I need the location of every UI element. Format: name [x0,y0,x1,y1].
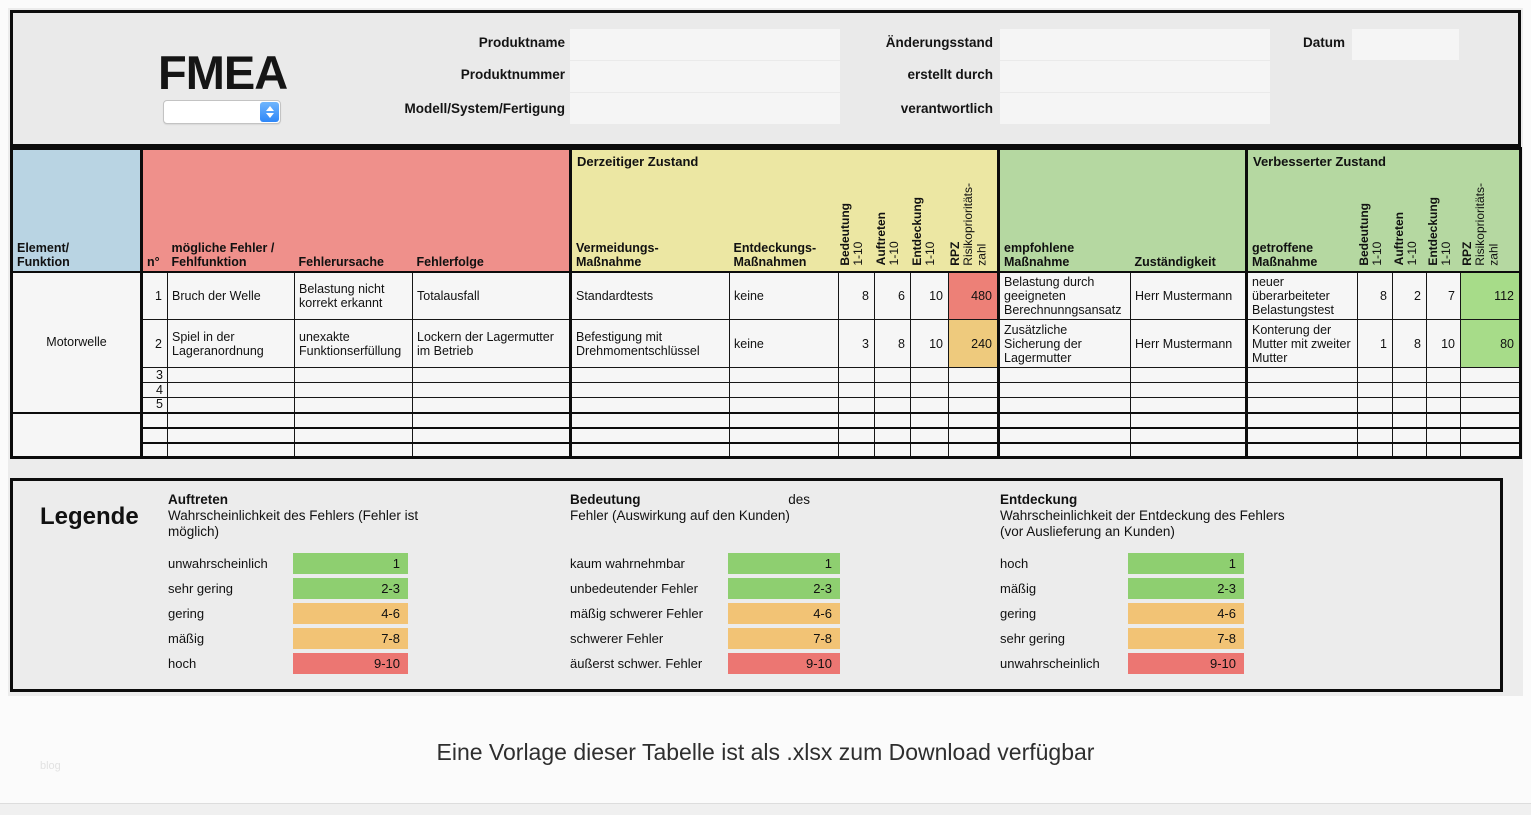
table-cell [1247,383,1358,398]
td-failure-cause: Belastung nicht korrekt erkannt [295,272,413,320]
produktnummer-label: Produktnummer [345,67,565,85]
table-cell [839,443,875,458]
download-caption: Eine Vorlage dieser Tabelle ist als .xls… [0,739,1531,766]
legend-scale-bar: 2-3 [293,578,408,599]
table-cell [999,383,1131,398]
table-cell [911,428,949,443]
legend-item: mäßig schwerer Fehler 4-6 [570,603,860,624]
td-detection-measure: keine [730,320,839,368]
table-cell [949,413,999,428]
table-cell [999,428,1131,443]
td-failure-cause: unexakte Funktionserfüllung [295,320,413,368]
table-cell [949,428,999,443]
table-cell [413,368,571,383]
table-cell [168,443,295,458]
td-no: 1 [142,272,168,320]
table-cell [1393,398,1427,413]
legend-heading: Bedeutung [570,492,641,507]
table-cell [168,413,295,428]
col-no: n° [142,149,168,272]
table-cell [1358,443,1393,458]
table-cell [911,368,949,383]
table-cell [1358,368,1393,383]
td-no [142,443,168,458]
table-cell [839,398,875,413]
col-vermeidungs-massnahme: Derzeitiger Zustand Vermeidungs- Maßnahm… [571,149,730,272]
legend-item: mäßig 2-3 [1000,578,1290,599]
td-detection-improved: 7 [1427,272,1461,320]
table-cell [911,383,949,398]
table-cell [1427,383,1461,398]
datum-input[interactable] [1352,29,1459,60]
table-cell [1247,443,1358,458]
td-severity-improved: 8 [1358,272,1393,320]
fmea-type-select[interactable] [163,100,281,124]
table-cell [875,368,911,383]
col-entdeckungs-massnahmen: Entdeckungs- Maßnahmen [730,149,839,272]
legend-box: Legende Auftreten Wahrscheinlichkeit des… [10,478,1503,692]
page-title: FMEA [158,45,287,100]
table-cell [875,413,911,428]
table-cell [730,383,839,398]
legend-scale-bar: 7-8 [293,628,408,649]
legend-column-bedeutung: Bedeutung des Fehler (Auswirkung auf den… [570,492,860,678]
legend-title: Legende [40,503,139,531]
legend-item: sehr gering 7-8 [1000,628,1290,649]
td-no: 3 [142,368,168,383]
col-empfohlene-massnahme: empfohlene Maßnahme [999,149,1131,272]
table-cell [295,443,413,458]
col-zustaendigkeit: Zuständigkeit [1131,149,1247,272]
table-cell [839,413,875,428]
table-cell [1247,398,1358,413]
table-cell [730,368,839,383]
legend-item: unbedeutender Fehler 2-3 [570,578,860,599]
table-cell [875,443,911,458]
td-rpz-improved: 112 [1461,272,1521,320]
legend-description: Wahrscheinlichkeit des Fehlers (Fehler i… [168,508,433,540]
table-cell [1427,428,1461,443]
td-no: 5 [142,398,168,413]
table-cell [1461,428,1521,443]
legend-scale-bar: 2-3 [728,578,840,599]
table-cell [875,428,911,443]
td-detection: 10 [911,320,949,368]
table-cell [1247,428,1358,443]
col-element-funktion: Element/ Funktion [12,149,142,272]
table-cell [949,398,999,413]
table-cell [730,443,839,458]
legend-item: gering 4-6 [168,603,458,624]
table-cell [949,368,999,383]
table-cell [999,368,1131,383]
legend-scale-bar: 9-10 [728,653,840,674]
table-cell [1393,383,1427,398]
col-getroffene-massnahme: Verbesserter Zustand getroffene Maßnahme [1247,149,1358,272]
legend-item: schwerer Fehler 7-8 [570,628,860,649]
td-occurrence: 8 [875,320,911,368]
verantwortlich-label: verantwortlich [773,101,993,119]
select-chevrons-icon [260,102,279,122]
erstellt-durch-input[interactable] [1000,61,1270,92]
td-responsibility: Herr Mustermann [1131,272,1247,320]
table-cell [1131,413,1247,428]
col-fehlerfolge: Fehlerfolge [413,149,571,272]
legend-scale-bar: 4-6 [728,603,840,624]
table-cell [295,368,413,383]
element-cell: Motorwelle [12,272,142,413]
legend-item: unwahrscheinlich 9-10 [1000,653,1290,674]
td-rpz: 480 [949,272,999,320]
legend-scale-bar: 7-8 [728,628,840,649]
table-cell [875,383,911,398]
table-cell [1461,368,1521,383]
table-cell [571,443,730,458]
legend-item: äußerst schwer. Fehler 9-10 [570,653,860,674]
table-cell [730,428,839,443]
table-cell [413,383,571,398]
table-cell [1461,383,1521,398]
table-cell [999,413,1131,428]
table-cell [571,413,730,428]
table-cell [413,413,571,428]
table-cell [413,443,571,458]
fmea-table: Element/ Funktion n° mögliche Fehler / F… [10,147,1522,459]
table-row: 4 [12,383,1521,398]
td-failure-mode: Spiel in der Lageranordnung [168,320,295,368]
td-severity: 3 [839,320,875,368]
table-cell [295,398,413,413]
table-cell [730,413,839,428]
legend-column-entdeckung: Entdeckung Wahrscheinlichkeit der Entdec… [1000,492,1290,678]
td-recommended-measure: Zusätzliche Sicherung der Lagermutter [999,320,1131,368]
fmea-header-box: FMEA Produktname Produktnummer Modell/Sy… [10,10,1521,147]
col-bedeutung: Bedeutung1-10 [839,149,875,272]
table-row: Motorwelle 1 Bruch der Welle Belastung n… [12,272,1521,320]
td-detection-improved: 10 [1427,320,1461,368]
footer-strip [0,803,1531,815]
legend-scale-bar: 1 [728,553,840,574]
table-cell [839,428,875,443]
table-cell [295,428,413,443]
table-cell [1247,368,1358,383]
table-cell [1131,443,1247,458]
table-row: 3 [12,368,1521,383]
table-cell [413,428,571,443]
section-title-derzeitiger-zustand: Derzeitiger Zustand [577,154,698,169]
table-cell [1131,398,1247,413]
table-row [12,428,1521,443]
table-cell [571,383,730,398]
legend-heading-suffix: des [788,492,810,507]
legend-column-auftreten: Auftreten Wahrscheinlichkeit des Fehlers… [168,492,458,678]
col-auftreten: Auftreten1-10 [875,149,911,272]
td-prevention-measure: Befestigung mit Drehmomentschlüssel [571,320,730,368]
td-prevention-measure: Standardtests [571,272,730,320]
td-severity-improved: 1 [1358,320,1393,368]
table-cell [1427,368,1461,383]
col-rpz: RPZRisikoprioritäts- zahl [949,149,999,272]
table-cell [839,383,875,398]
legend-scale-bar: 9-10 [1128,653,1244,674]
table-cell [168,398,295,413]
col-entdeckung-improved: Entdeckung1-10 [1427,149,1461,272]
legend-item: sehr gering 2-3 [168,578,458,599]
legend-heading: Auftreten [168,492,228,507]
table-cell [1393,443,1427,458]
table-cell [999,443,1131,458]
table-cell [1393,368,1427,383]
table-cell [295,383,413,398]
verantwortlich-input[interactable] [1000,93,1270,124]
table-cell [1358,428,1393,443]
legend-scale-bar: 4-6 [1128,603,1244,624]
td-responsibility: Herr Mustermann [1131,320,1247,368]
table-cell [839,368,875,383]
td-no: 2 [142,320,168,368]
table-cell [730,398,839,413]
td-no [142,413,168,428]
table-cell [168,383,295,398]
td-rpz-improved: 80 [1461,320,1521,368]
col-auftreten-improved: Auftreten1-10 [1393,149,1427,272]
table-row [12,443,1521,458]
table-cell [413,398,571,413]
datum-label: Datum [1225,35,1345,53]
legend-scale-bar: 7-8 [1128,628,1244,649]
td-occurrence-improved: 2 [1393,272,1427,320]
legend-item: mäßig 7-8 [168,628,458,649]
col-rpz-improved: RPZRisikoprioritäts- zahl [1461,149,1521,272]
table-cell [1358,383,1393,398]
table-cell [1393,413,1427,428]
table-cell [1358,398,1393,413]
td-failure-mode: Bruch der Welle [168,272,295,320]
table-cell [1393,428,1427,443]
table-cell [1461,443,1521,458]
table-cell [168,368,295,383]
table-cell [1461,398,1521,413]
td-taken-measure: neuer überarbeiteter Belastungstest [1247,272,1358,320]
table-cell [1131,368,1247,383]
table-cell [911,443,949,458]
table-cell [875,398,911,413]
col-moegliche-fehler: mögliche Fehler / Fehlfunktion [168,149,295,272]
table-cell [911,398,949,413]
table-cell [1427,398,1461,413]
legend-item: hoch 1 [1000,553,1290,574]
table-row [12,413,1521,428]
col-fehlerursache: Fehlerursache [295,149,413,272]
td-rpz: 240 [949,320,999,368]
table-cell [1358,413,1393,428]
legend-scale-bar: 1 [293,553,408,574]
legend-item: unwahrscheinlich 1 [168,553,458,574]
td-occurrence-improved: 8 [1393,320,1427,368]
legend-item: hoch 9-10 [168,653,458,674]
modell-system-fertigung-label: Modell/System/Fertigung [345,101,565,119]
table-cell [295,413,413,428]
td-no [142,428,168,443]
legend-description: Fehler (Auswirkung auf den Kunden) [570,508,835,524]
legend-item: kaum wahrnehmbar 1 [570,553,860,574]
table-row: 5 [12,398,1521,413]
produktname-label: Produktname [345,35,565,53]
table-cell [571,368,730,383]
col-entdeckung: Entdeckung1-10 [911,149,949,272]
table-cell [1131,428,1247,443]
td-taken-measure: Konterung der Mutter mit zweiter Mutter [1247,320,1358,368]
legend-scale-bar: 2-3 [1128,578,1244,599]
legend-heading: Entdeckung [1000,492,1077,507]
section-title-verbesserter-zustand: Verbesserter Zustand [1253,154,1386,169]
table-cell [571,398,730,413]
table-header-row: Element/ Funktion n° mögliche Fehler / F… [12,149,1521,272]
table-cell [1427,443,1461,458]
td-detection: 10 [911,272,949,320]
table-cell [1461,413,1521,428]
td-severity: 8 [839,272,875,320]
legend-scale-bar: 4-6 [293,603,408,624]
table-cell [949,443,999,458]
legend-scale-bar: 1 [1128,553,1244,574]
table-cell [1247,413,1358,428]
element-cell [12,413,142,458]
td-occurrence: 6 [875,272,911,320]
erstellt-durch-label: erstellt durch [773,67,993,85]
table-cell [1427,413,1461,428]
table-cell [168,428,295,443]
table-cell [999,398,1131,413]
td-recommended-measure: Belastung durch geeigneten Berechnunngsa… [999,272,1131,320]
table-cell [911,413,949,428]
legend-scale-bar: 9-10 [293,653,408,674]
table-cell [1131,383,1247,398]
legend-item: gering 4-6 [1000,603,1290,624]
table-cell [949,383,999,398]
td-failure-effect: Totalausfall [413,272,571,320]
td-no: 4 [142,383,168,398]
td-failure-effect: Lockern der Lagermutter im Betrieb [413,320,571,368]
aenderungsstand-label: Änderungsstand [773,35,993,53]
td-detection-measure: keine [730,272,839,320]
table-cell [571,428,730,443]
legend-description: Wahrscheinlichkeit der Entdeckung des Fe… [1000,508,1295,540]
table-row: 2 Spiel in der Lageranordnung unexakte F… [12,320,1521,368]
